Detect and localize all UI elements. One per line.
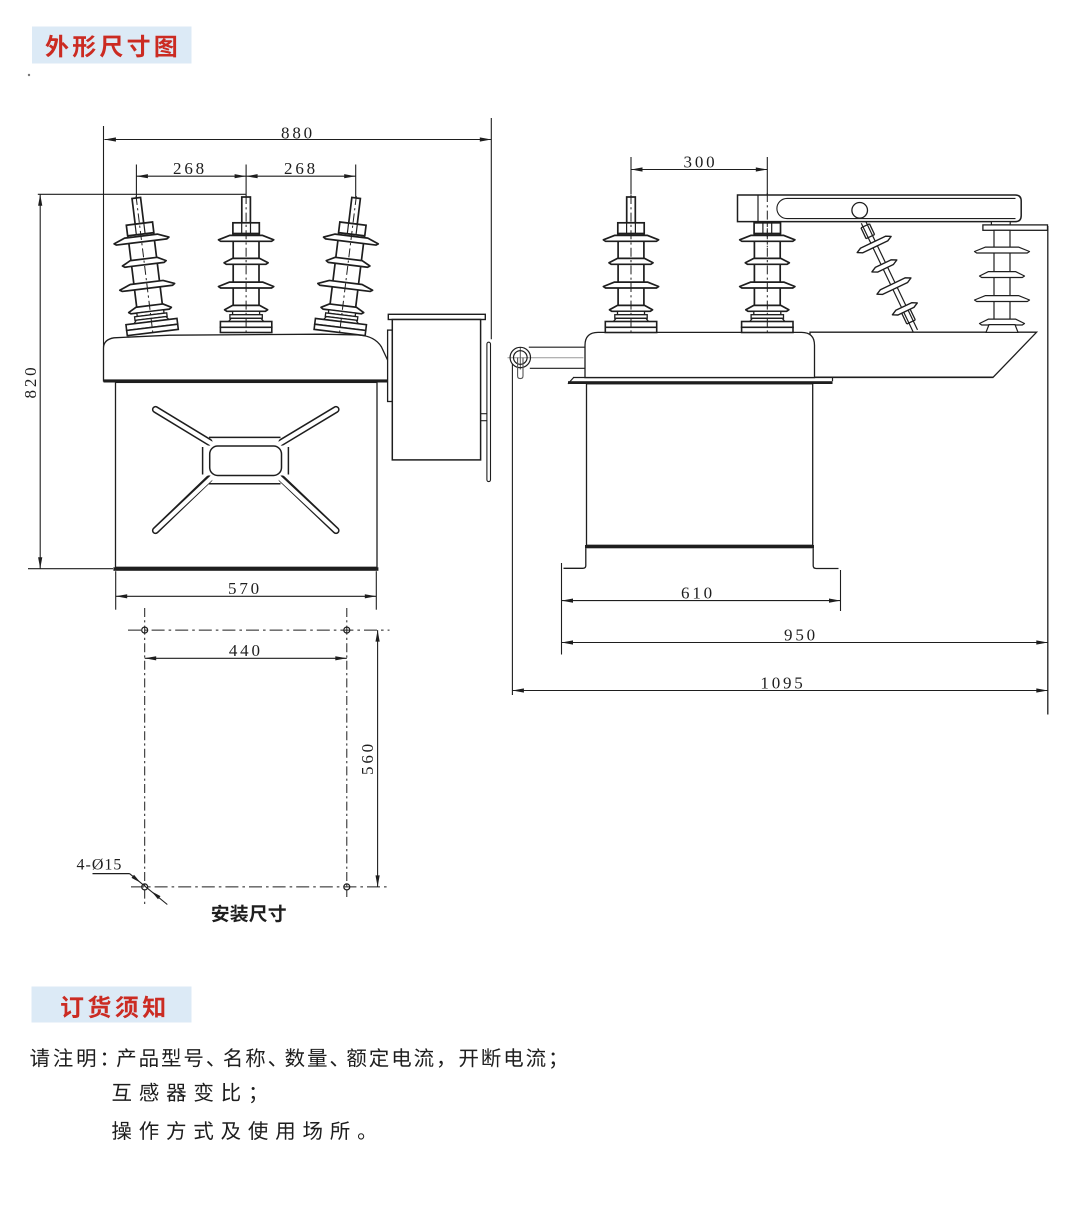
svg-text:4-Ø15: 4-Ø15: [77, 857, 123, 874]
svg-text:820: 820: [21, 365, 40, 399]
svg-text:570: 570: [228, 579, 262, 598]
svg-text:300: 300: [684, 152, 718, 171]
svg-text:950: 950: [784, 625, 818, 644]
svg-text:560: 560: [358, 741, 377, 775]
svg-text:610: 610: [681, 583, 715, 602]
svg-text:268: 268: [284, 159, 318, 178]
svg-text:268: 268: [173, 159, 207, 178]
svg-text:440: 440: [229, 641, 263, 660]
svg-text:880: 880: [281, 123, 315, 142]
svg-text:1095: 1095: [760, 673, 805, 692]
